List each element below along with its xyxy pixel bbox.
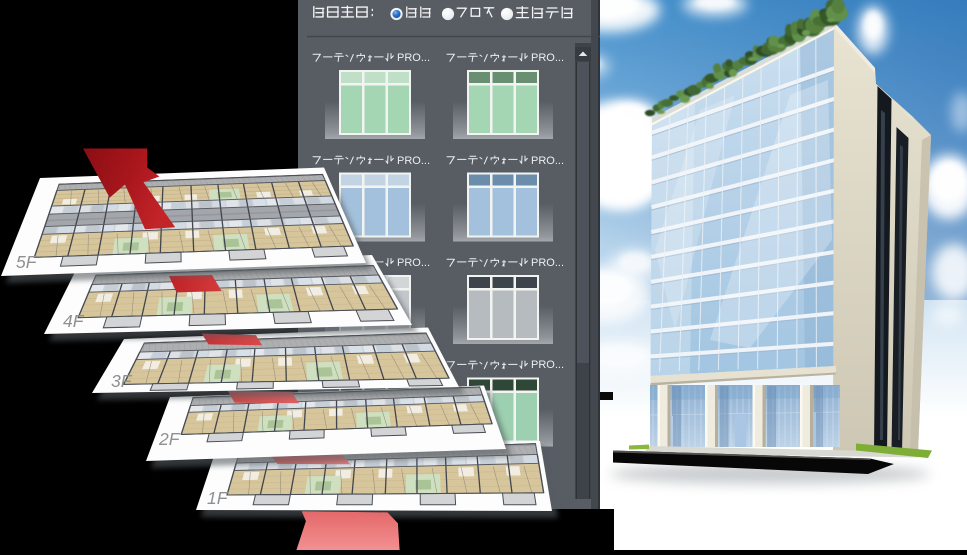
svg-text:3F: 3F <box>111 371 133 391</box>
svg-text:2F: 2F <box>158 429 181 449</box>
svg-text:1F: 1F <box>207 488 229 508</box>
svg-text:4F: 4F <box>63 311 85 331</box>
svg-text:5F: 5F <box>16 252 38 272</box>
